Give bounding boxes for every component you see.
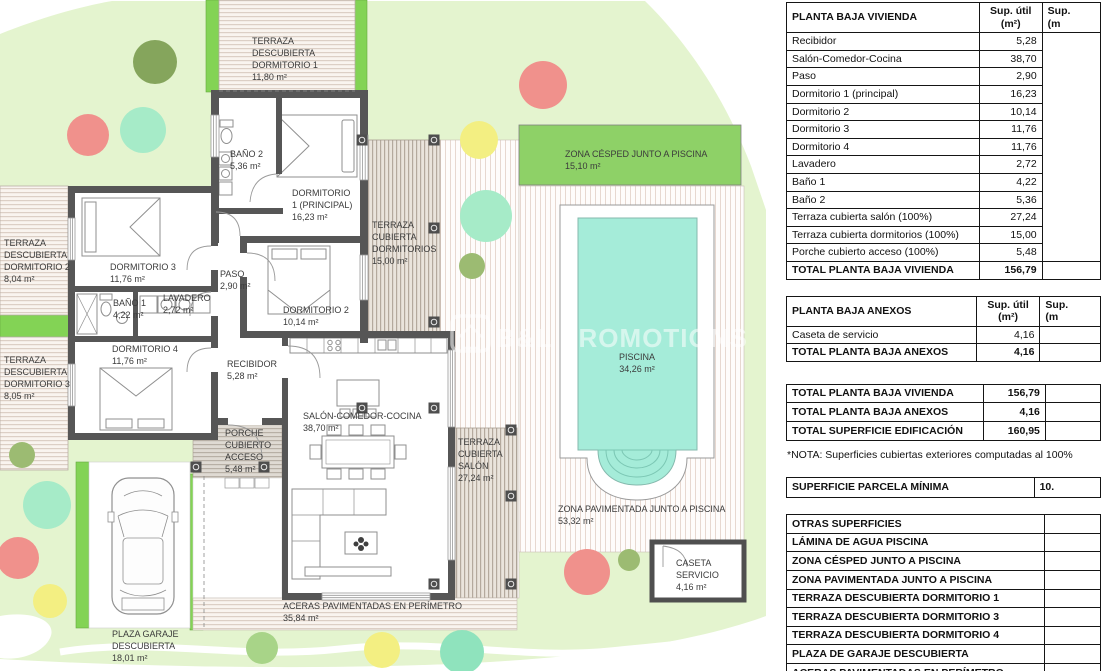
row-extra [1042,244,1100,262]
row-label: Terraza cubierta dormitorios (100%) [787,226,980,244]
row-label: TERRAZA DESCUBIERTA DORMITORIO 4 [787,626,1045,645]
row-extra [1042,209,1100,227]
col-sup-cut: Sup.(m [1042,3,1100,33]
site-plan: TERRAZADESCUBIERTADORMITORIO 111,80 m² B… [0,0,786,671]
row-label: TERRAZA DESCUBIERTA DORMITORIO 1 [787,589,1045,608]
table-row: SUPERFICIE PARCELA MÍNIMA 10. [787,477,1101,498]
row-value: 4,16 [984,403,1046,422]
row-value [1044,608,1100,627]
row-label: Terraza cubierta salón (100%) [787,209,980,227]
row-value: 2,72 [979,156,1042,174]
col-header-line: Sup. útil [987,299,1028,311]
bed-dorm4 [100,368,172,430]
table-header-row: PLANTA BAJA ANEXOS Sup. útil(m²) Sup.(m [787,296,1101,326]
table-row: LÁMINA DE AGUA PISCINA [787,533,1101,552]
row-extra [1042,103,1100,121]
tree [364,632,400,668]
row-value: 27,24 [979,209,1042,227]
row-value: 4,22 [979,173,1042,191]
col-header-line: (m²) [1001,18,1021,30]
row-extra [1042,33,1100,51]
col-header-line: Sup. [1045,299,1068,311]
row-value: 156,79 [984,384,1046,403]
row-extra [1045,422,1100,441]
row-label: PLAZA DE GARAJE DESCUBIERTA [787,645,1045,664]
tree [33,584,67,618]
row-value [1044,515,1100,534]
col-header-line: (m [1048,18,1061,30]
table-row: TOTAL PLANTA BAJA VIVIENDA156,79 [787,384,1101,403]
tree [618,549,640,571]
row-value [1044,645,1100,664]
row-label: OTRAS SUPERFICIES [787,515,1045,534]
table-row: Terraza cubierta dormitorios (100%)15,00 [787,226,1101,244]
coffee-table [345,532,377,554]
table-row: OTRAS SUPERFICIES [787,515,1101,534]
col-header-line: Sup. [1048,5,1071,17]
row-label: Salón-Comedor-Cocina [787,50,980,68]
row-label: Lavadero [787,156,980,174]
row-value: 38,70 [979,50,1042,68]
table-row: Salón-Comedor-Cocina38,70 [787,50,1101,68]
row-label: Dormitorio 1 (principal) [787,85,980,103]
row-value [1044,664,1100,671]
row-extra [1042,156,1100,174]
table-parcela-minima: SUPERFICIE PARCELA MÍNIMA 10. [786,477,1101,499]
row-extra [1045,384,1100,403]
tree [460,121,498,159]
col-sup-cut: Sup.(m [1040,296,1101,326]
row-label: ZONA CÉSPED JUNTO A PISCINA [787,552,1045,571]
table-row: Dormitorio 311,76 [787,121,1101,139]
table-row: Baño 25,36 [787,191,1101,209]
table-row: TOTAL PLANTA BAJA ANEXOS4,16 [787,403,1101,422]
table-row: TOTAL PLANTA BAJA VIVIENDA156,79 [787,261,1101,279]
table-row: Baño 14,22 [787,173,1101,191]
table-row: PLAZA DE GARAJE DESCUBIERTA [787,645,1101,664]
row-value: 4,16 [976,326,1040,344]
row-extra [1042,138,1100,156]
car [108,478,178,614]
table-row: Terraza cubierta salón (100%)27,24 [787,209,1101,227]
bed-dorm1 [277,115,357,177]
tree [459,253,485,279]
table-planta-baja-vivienda: PLANTA BAJA VIVIENDA Sup. útil(m²) Sup.(… [786,2,1101,280]
row-label: Paso [787,68,980,86]
row-extra [1042,50,1100,68]
table-header-row: PLANTA BAJA VIVIENDA Sup. útil(m²) Sup.(… [787,3,1101,33]
row-label: TOTAL PLANTA BAJA ANEXOS [787,344,977,362]
table-row: Dormitorio 210,14 [787,103,1101,121]
tree [519,61,567,109]
row-value: 4,16 [976,344,1040,362]
row-value: 5,28 [979,33,1042,51]
row-extra [1042,121,1100,139]
row-value: 10,14 [979,103,1042,121]
table-row: TERRAZA DESCUBIERTA DORMITORIO 1 [787,589,1101,608]
tree [67,114,109,156]
row-extra [1042,85,1100,103]
row-label: Porche cubierto acceso (100%) [787,244,980,262]
row-label: Recibidor [787,33,980,51]
footnote: *NOTA: Superficies cubiertas exteriores … [787,449,1101,461]
row-extra [1040,326,1101,344]
row-label: TOTAL PLANTA BAJA VIVIENDA [787,384,984,403]
row-value [1044,571,1100,590]
row-label: SUPERFICIE PARCELA MÍNIMA [787,477,1035,498]
row-extra [1042,261,1100,279]
tree [120,107,166,153]
row-value: 16,23 [979,85,1042,103]
row-label: ACERAS PAVIMENTADAS EN PERÍMETRO [787,664,1045,671]
row-value: 15,00 [979,226,1042,244]
tree [23,481,71,529]
row-label: Baño 1 [787,173,980,191]
table-row: TOTAL SUPERFICIE EDIFICACIÓN160,95 [787,422,1101,441]
table-row: Caseta de servicio4,16 [787,326,1101,344]
row-value [1044,533,1100,552]
row-label: ZONA PAVIMENTADA JUNTO A PISCINA [787,571,1045,590]
row-extra [1042,191,1100,209]
table-row: Dormitorio 411,76 [787,138,1101,156]
row-label: TOTAL SUPERFICIE EDIFICACIÓN [787,422,984,441]
tree [564,549,610,595]
row-extra [1042,68,1100,86]
row-value: 10. [1034,477,1100,498]
row-label: Dormitorio 3 [787,121,980,139]
row-extra [1040,344,1101,362]
watermark-text: B&L PROMOTIONS [496,323,748,353]
table-row: TOTAL PLANTA BAJA ANEXOS4,16 [787,344,1101,362]
col-sup-util: Sup. útil(m²) [976,296,1040,326]
row-label: Dormitorio 4 [787,138,980,156]
table-row: TERRAZA DESCUBIERTA DORMITORIO 4 [787,626,1101,645]
table-row: Paso2,90 [787,68,1101,86]
table-otras-superficies: OTRAS SUPERFICIESLÁMINA DE AGUA PISCINAZ… [786,514,1101,671]
row-value: 11,76 [979,121,1042,139]
table-row: Dormitorio 1 (principal)16,23 [787,85,1101,103]
kitchen-counter [290,338,447,353]
col-sup-util: Sup. útil(m²) [979,3,1042,33]
row-label: TERRAZA DESCUBIERTA DORMITORIO 3 [787,608,1045,627]
table-row: Lavadero2,72 [787,156,1101,174]
table-row: TERRAZA DESCUBIERTA DORMITORIO 3 [787,608,1101,627]
row-value: 5,36 [979,191,1042,209]
col-header-line: (m [1045,311,1058,323]
table-title: PLANTA BAJA ANEXOS [787,296,977,326]
table-title: PLANTA BAJA VIVIENDA [787,3,980,33]
row-value: 2,90 [979,68,1042,86]
tree [246,632,278,664]
row-extra [1042,226,1100,244]
col-header-line: (m²) [998,311,1018,323]
row-value: 5,48 [979,244,1042,262]
col-header-line: Sup. útil [990,5,1031,17]
table-row: Porche cubierto acceso (100%)5,48 [787,244,1101,262]
bed-dorm3 [82,198,160,256]
row-label: TOTAL PLANTA BAJA VIVIENDA [787,261,980,279]
table-planta-baja-anexos: PLANTA BAJA ANEXOS Sup. útil(m²) Sup.(m … [786,296,1101,362]
tree [9,442,35,468]
tree [460,190,512,242]
table-row: ZONA CÉSPED JUNTO A PISCINA [787,552,1101,571]
row-label: LÁMINA DE AGUA PISCINA [787,533,1045,552]
bed-dorm2 [268,246,330,314]
row-label: Dormitorio 2 [787,103,980,121]
row-label: Caseta de servicio [787,326,977,344]
table-row: ACERAS PAVIMENTADAS EN PERÍMETRO [787,664,1101,671]
row-value: 160,95 [984,422,1046,441]
table-row: ZONA PAVIMENTADA JUNTO A PISCINA [787,571,1101,590]
table-totales: TOTAL PLANTA BAJA VIVIENDA156,79TOTAL PL… [786,384,1101,441]
row-label: TOTAL PLANTA BAJA ANEXOS [787,403,984,422]
row-value [1044,589,1100,608]
row-value: 11,76 [979,138,1042,156]
table-row: Recibidor5,28 [787,33,1101,51]
area-tables-panel: PLANTA BAJA VIVIENDA Sup. útil(m²) Sup.(… [786,0,1101,671]
tree [133,40,177,84]
entry-steps [225,478,269,488]
row-extra [1042,173,1100,191]
row-value: 156,79 [979,261,1042,279]
row-extra [1045,403,1100,422]
row-value [1044,552,1100,571]
row-label: Baño 2 [787,191,980,209]
row-value [1044,626,1100,645]
walkway [193,478,282,598]
